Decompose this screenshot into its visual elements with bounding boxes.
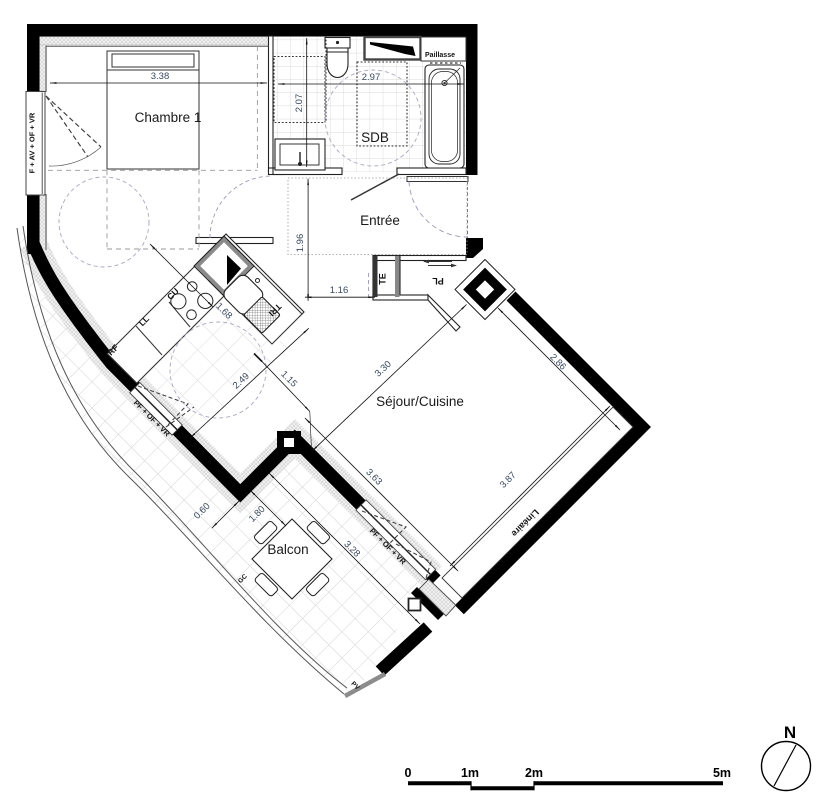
svg-text:1.16: 1.16 [330, 285, 349, 296]
svg-text:TE: TE [378, 273, 388, 285]
svg-text:2m: 2m [525, 766, 543, 780]
svg-text:Balcon: Balcon [267, 542, 308, 557]
svg-text:Chambre 1: Chambre 1 [135, 110, 202, 125]
svg-text:0: 0 [405, 766, 412, 780]
svg-text:F + AV + OF + VR: F + AV + OF + VR [28, 112, 37, 173]
svg-text:PL: PL [432, 276, 444, 286]
svg-text:SDB: SDB [361, 130, 389, 145]
svg-text:Paillasse: Paillasse [425, 52, 455, 59]
svg-text:N: N [784, 723, 796, 742]
svg-text:2.07: 2.07 [294, 94, 305, 113]
svg-text:Séjour/Cuisine: Séjour/Cuisine [376, 394, 464, 409]
svg-text:Entrée: Entrée [360, 213, 400, 228]
svg-text:3.38: 3.38 [151, 71, 170, 82]
svg-text:2.97: 2.97 [362, 72, 381, 83]
svg-text:1.96: 1.96 [295, 234, 306, 253]
svg-text:1m: 1m [461, 766, 479, 780]
svg-text:5m: 5m [713, 766, 731, 780]
